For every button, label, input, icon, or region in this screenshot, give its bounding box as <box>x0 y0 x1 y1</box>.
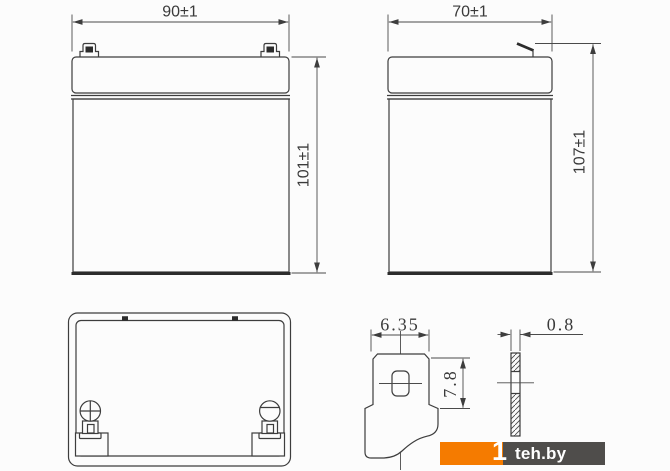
terminal-slot <box>86 47 94 53</box>
front-lid <box>72 57 289 93</box>
terminal-side-detail: 0.8 <box>497 315 583 437</box>
side-width-label: 70±1 <box>452 4 488 21</box>
side-terminal-tab <box>517 44 534 58</box>
side-lid <box>388 57 552 93</box>
front-terminal-negative <box>261 44 280 58</box>
watermark-logo-digit: 1 <box>492 438 507 465</box>
watermark-site-text: teh.by <box>515 445 566 462</box>
top-terminal-positive <box>80 401 102 439</box>
blade-width-label: 6.35 <box>380 315 420 335</box>
watermark-dark-bar: teh.by <box>503 442 605 465</box>
side-view: 70±1 107±1 <box>387 4 601 274</box>
front-height-label: 101±1 <box>296 143 313 187</box>
blade-height-label: 7.8 <box>440 369 460 398</box>
blade-side-hatch-top <box>512 354 520 372</box>
front-terminal-positive <box>80 44 99 58</box>
terminal-pedestal <box>83 421 99 434</box>
tab-blade <box>517 44 534 51</box>
top-view <box>69 313 291 466</box>
side-height-label: 107±1 <box>572 130 589 174</box>
top-terminal-negative <box>259 401 281 439</box>
blade-thickness-label: 0.8 <box>547 315 576 335</box>
blade-front-outline <box>365 354 438 458</box>
blade-thickness-extension-lines <box>511 330 520 352</box>
side-body <box>389 99 551 272</box>
battery-dimension-drawing: 90±1 101±1 70±1 <box>0 0 670 471</box>
blade-side-hatch-bottom <box>512 394 520 436</box>
terminal-pedestal <box>262 421 278 434</box>
front-width-label: 90±1 <box>162 4 198 21</box>
drawing-canvas: 90±1 101±1 70±1 <box>0 0 670 471</box>
terminal-slot <box>267 47 275 53</box>
watermark-banner: teh.by 1 <box>440 442 605 465</box>
front-body <box>73 99 289 272</box>
terminal-post <box>260 401 280 421</box>
front-view: 90±1 101±1 <box>71 4 326 274</box>
